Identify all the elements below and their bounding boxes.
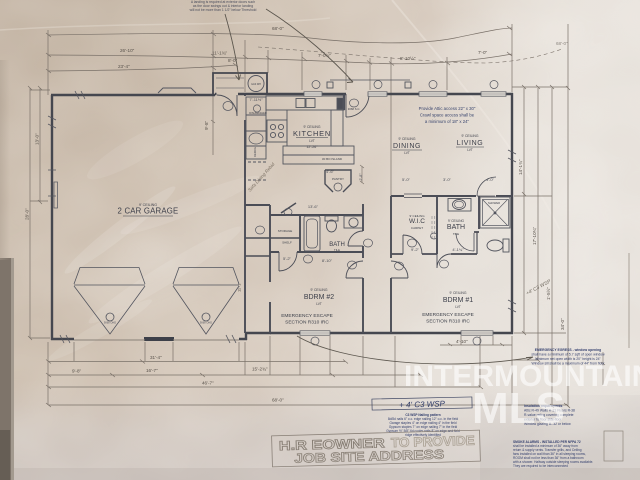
svg-text:1'-5½": 1'-5½" (545, 287, 551, 300)
svg-text:LVT: LVT (404, 151, 410, 155)
svg-text:GAS WH: GAS WH (251, 83, 261, 86)
svg-text:REFRIG: REFRIG (253, 147, 257, 157)
svg-text:DINING: DINING (393, 143, 421, 150)
svg-text:28'-0": 28'-0" (25, 208, 30, 220)
svg-text:3068 S.C.: 3068 S.C. (348, 107, 361, 111)
svg-text:46'-7": 46'-7" (202, 381, 214, 386)
svg-text:4'-1¾": 4'-1¾" (452, 247, 464, 252)
svg-text:68'-0": 68'-0" (556, 41, 568, 46)
svg-text:9'-2": 9'-2" (411, 247, 420, 252)
svg-text:9' CEILING: 9' CEILING (303, 125, 320, 129)
svg-text:68'-0": 68'-0" (272, 398, 284, 403)
svg-text:W.I.C: W.I.C (409, 218, 425, 225)
svg-text:LVT: LVT (316, 302, 322, 306)
svg-text:9'-8": 9'-8" (204, 120, 209, 130)
svg-text:EMERGENCY EGRESS - window open: EMERGENCY EGRESS - window opening (535, 348, 601, 352)
svg-text:SECTION R310 IRC: SECTION R310 IRC (285, 320, 329, 326)
svg-text:15'-2¾": 15'-2¾" (252, 367, 268, 372)
svg-text:31'-4": 31'-4" (150, 355, 162, 360)
svg-text:13'-0": 13'-0" (35, 133, 40, 145)
svg-text:2 CAR GARAGE: 2 CAR GARAGE (118, 207, 179, 216)
svg-text:23'-4": 23'-4" (118, 64, 130, 69)
svg-text:3'-0": 3'-0" (443, 177, 452, 182)
svg-text:5'-0": 5'-0" (402, 177, 411, 182)
svg-text:DISHWASHER: DISHWASHER (249, 111, 267, 115)
svg-text:CARPET: CARPET (411, 226, 423, 230)
svg-text:9' CEILING: 9' CEILING (409, 214, 425, 218)
svg-text:17'-10¾": 17'-10¾" (532, 227, 537, 245)
svg-text:9' CEILING: 9' CEILING (139, 203, 157, 207)
svg-text:LVT: LVT (455, 305, 461, 309)
svg-text:EMERGENCY ESCAPE: EMERGENCY ESCAPE (281, 313, 333, 319)
svg-text:16'-7": 16'-7" (146, 368, 158, 373)
svg-text:LVT: LVT (467, 148, 473, 152)
svg-text:SECTION R310 IRC: SECTION R310 IRC (426, 319, 470, 325)
svg-text:26'-10": 26'-10" (120, 48, 135, 53)
svg-text:7'-0½": 7'-0½" (318, 52, 331, 58)
svg-text:LIVING: LIVING (457, 140, 484, 147)
svg-text:68'-0": 68'-0" (272, 26, 284, 31)
svg-text:BATH: BATH (447, 224, 465, 231)
svg-text:4'-10": 4'-10" (456, 339, 468, 344)
svg-text:5'-2": 5'-2" (283, 256, 292, 261)
svg-text:BDRM #1: BDRM #1 (443, 297, 473, 304)
svg-text:7'-0": 7'-0" (478, 50, 488, 55)
svg-text:9' CEILING: 9' CEILING (310, 288, 327, 292)
svg-text:4'-6": 4'-6" (326, 169, 335, 174)
svg-text:BDRM #2: BDRM #2 (304, 294, 334, 301)
svg-text:Crawl space access shall be: Crawl space access shall be (420, 113, 475, 118)
svg-text:9' CEILING: 9' CEILING (449, 291, 466, 295)
svg-text:9' CEILING: 9' CEILING (448, 219, 465, 223)
svg-text:TILE: TILE (334, 248, 340, 252)
svg-text:shall have a minimum of 5.7 sq: shall have a minimum of 5.7 sqft of open… (531, 353, 605, 357)
svg-text:9'-8": 9'-8" (72, 369, 82, 374)
svg-text:7'-11½": 7'-11½" (249, 97, 263, 102)
svg-text:LVT: LVT (309, 139, 315, 143)
svg-text:4'-0": 4'-0" (486, 177, 495, 182)
svg-text:will not be more than 1 1/2" b: will not be more than 1 1/2" below Thres… (190, 8, 257, 12)
svg-text:14'-1¾": 14'-1¾" (518, 159, 523, 175)
svg-text:KITCHEN: KITCHEN (293, 129, 331, 138)
svg-text:SHOWER: SHOWER (488, 201, 500, 205)
svg-text:PANTRY: PANTRY (332, 177, 344, 181)
svg-text:8'-10": 8'-10" (322, 258, 333, 263)
svg-text:TILE: TILE (453, 232, 459, 236)
svg-text:+ 4' C3 WSP: + 4' C3 WSP (399, 399, 446, 410)
svg-text:2'-8": 2'-8" (359, 173, 363, 181)
svg-text:MLS: MLS (472, 384, 565, 433)
svg-text:13'-6": 13'-6" (308, 204, 319, 209)
svg-text:12'-26": 12'-26" (306, 145, 318, 149)
svg-text:30 BO ISLAND: 30 BO ISLAND (322, 157, 343, 161)
svg-text:STORAGE: STORAGE (278, 229, 293, 233)
svg-text:SHELF: SHELF (282, 241, 292, 245)
svg-text:EMERGENCY ESCAPE: EMERGENCY ESCAPE (422, 312, 474, 318)
svg-text:a minimum of 18" x 24": a minimum of 18" x 24" (425, 119, 470, 124)
svg-text:8'-10½": 8'-10½" (400, 55, 416, 61)
svg-text:34'-0": 34'-0" (560, 318, 565, 330)
svg-text:11'-1¾": 11'-1¾" (212, 51, 228, 56)
svg-text:9' CEILING: 9' CEILING (461, 134, 478, 138)
svg-text:9068 OHD: 9068 OHD (104, 321, 116, 325)
svg-text:Provide Attic access 22" x 30": Provide Attic access 22" x 30" (419, 106, 476, 111)
svg-text:9' CEILING: 9' CEILING (398, 137, 415, 141)
svg-text:9068 OHD: 9068 OHD (200, 321, 212, 325)
svg-text:They are required to be interc: They are required to be interconnected (513, 464, 568, 468)
